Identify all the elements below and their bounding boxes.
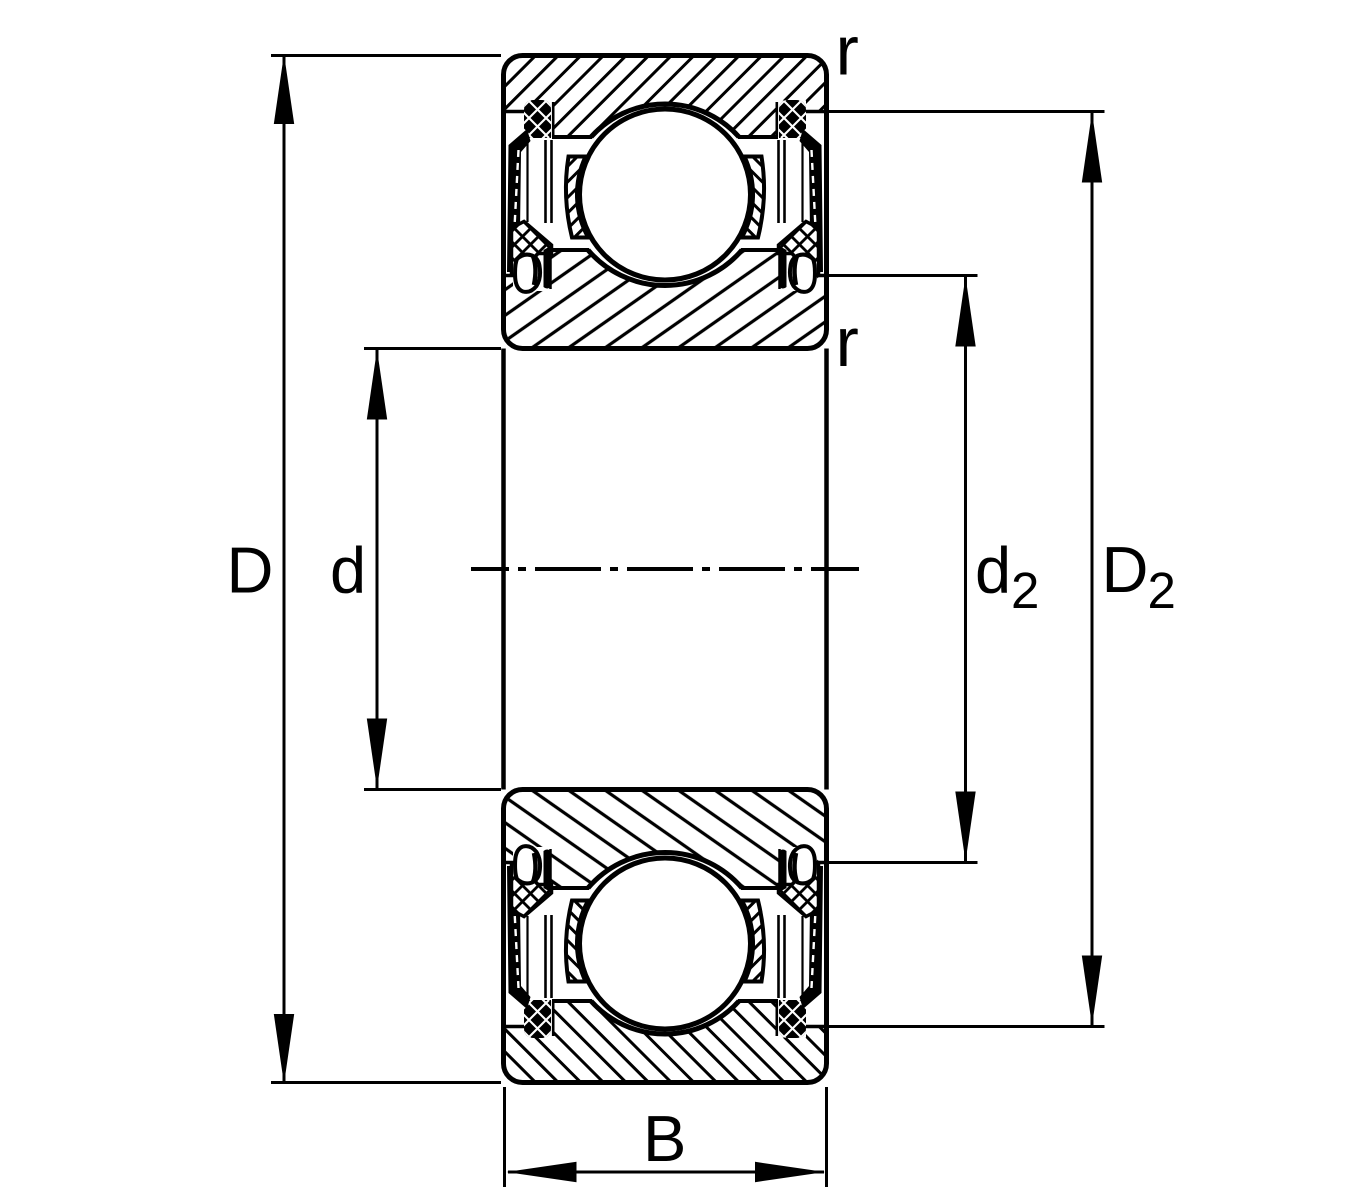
svg-text:D: D — [227, 534, 274, 607]
svg-text:2: 2 — [1011, 562, 1039, 619]
svg-text:2: 2 — [1148, 562, 1176, 619]
svg-text:r: r — [836, 303, 859, 381]
svg-text:d: d — [975, 534, 1011, 607]
svg-text:B: B — [643, 1102, 686, 1175]
svg-text:D: D — [1102, 533, 1149, 606]
svg-text:d: d — [330, 534, 366, 607]
svg-text:r: r — [836, 12, 859, 90]
